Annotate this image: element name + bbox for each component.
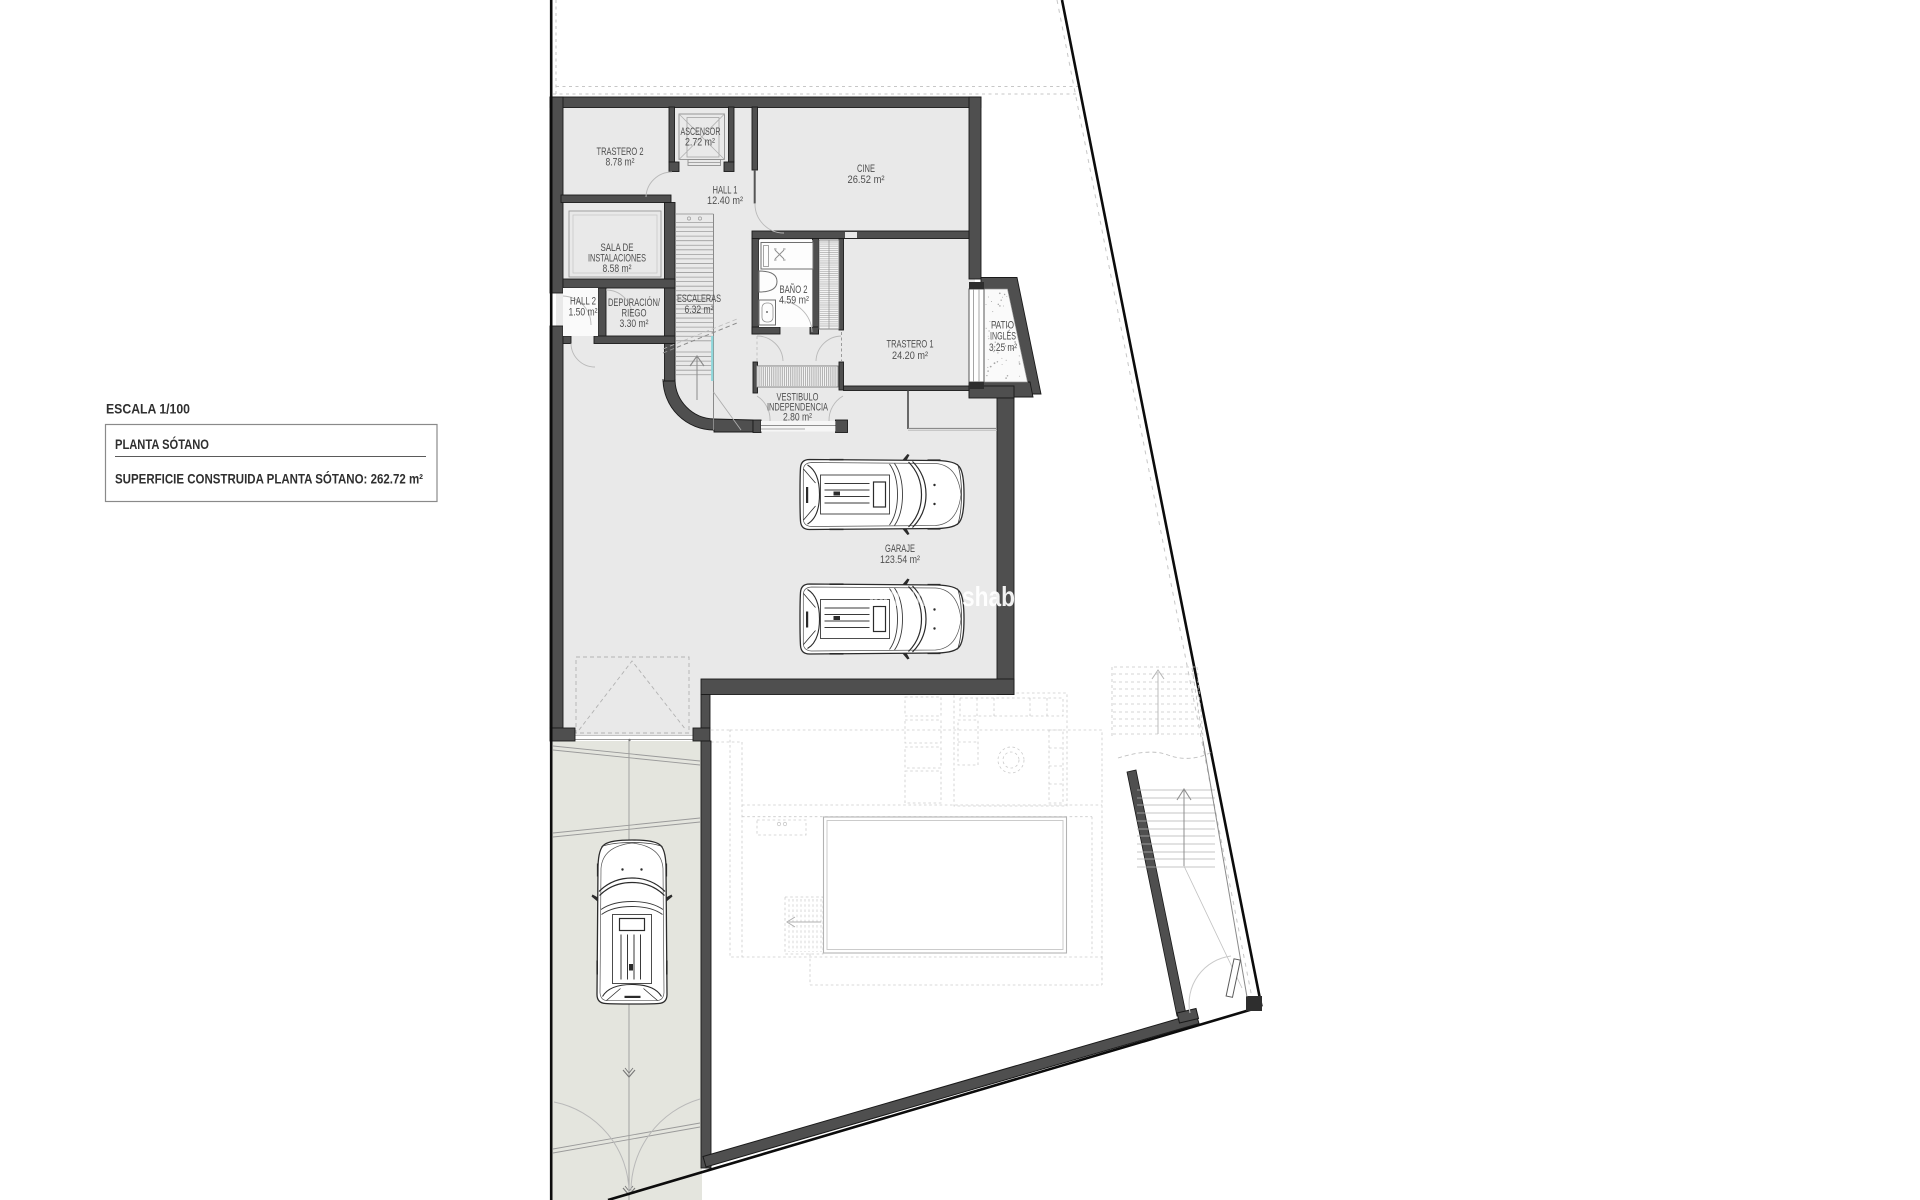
svg-text:8.78 m²: 8.78 m² bbox=[606, 157, 635, 169]
svg-text:2.72 m²: 2.72 m² bbox=[685, 137, 715, 149]
svg-text:2.80 m²: 2.80 m² bbox=[783, 412, 812, 424]
svg-text:3.25 m²: 3.25 m² bbox=[989, 342, 1017, 354]
svg-text:12.40 m²: 12.40 m² bbox=[707, 195, 743, 207]
svg-text:3.30 m²: 3.30 m² bbox=[620, 318, 649, 330]
svg-text:123.54 m²: 123.54 m² bbox=[880, 554, 920, 566]
svg-text:PLANTA SÓTANO: PLANTA SÓTANO bbox=[115, 435, 209, 452]
svg-text:6.32 m²: 6.32 m² bbox=[685, 304, 714, 316]
svg-text:TRASTERO 1: TRASTERO 1 bbox=[887, 339, 934, 351]
svg-text:www.: www. bbox=[867, 581, 938, 612]
svg-text:SUPERFICIE CONSTRUIDA PLANTA S: SUPERFICIE CONSTRUIDA PLANTA SÓTANO: 262… bbox=[115, 470, 423, 487]
svg-text:ESCALA 1/100: ESCALA 1/100 bbox=[106, 401, 190, 417]
svg-text:26.52 m²: 26.52 m² bbox=[848, 174, 885, 186]
svg-text:INGLÉS: INGLÉS bbox=[990, 330, 1016, 343]
svg-text:1.50 m²: 1.50 m² bbox=[569, 307, 598, 319]
svg-text:4.59 m²: 4.59 m² bbox=[779, 295, 809, 307]
svg-text:24.20 m²: 24.20 m² bbox=[892, 350, 928, 362]
svg-text:8.58 m²: 8.58 m² bbox=[603, 263, 632, 275]
svg-text:shab: shab bbox=[962, 581, 1015, 612]
